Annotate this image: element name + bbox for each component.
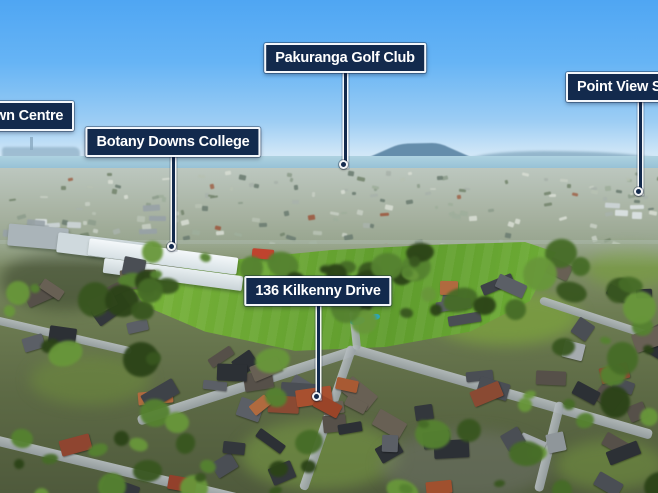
tree bbox=[173, 430, 198, 456]
leader-line bbox=[344, 71, 347, 167]
tree bbox=[300, 459, 316, 473]
tree bbox=[430, 304, 442, 316]
location-dot bbox=[634, 187, 643, 196]
tree bbox=[493, 479, 505, 488]
leader-line bbox=[317, 304, 320, 399]
label-botany-town-centre: wn Centre bbox=[0, 101, 74, 131]
leader-line bbox=[172, 155, 175, 249]
tree bbox=[33, 487, 51, 493]
label-botany-downs-college: Botany Downs College bbox=[85, 127, 260, 157]
tree bbox=[131, 301, 154, 321]
tree bbox=[599, 336, 611, 345]
tree bbox=[551, 479, 573, 493]
tree bbox=[127, 436, 149, 454]
label-136-kilkenny-drive: 136 Kilkenny Drive bbox=[244, 276, 391, 306]
tree bbox=[508, 441, 543, 467]
tree bbox=[268, 486, 282, 493]
location-dot bbox=[339, 160, 348, 169]
tree bbox=[41, 453, 58, 465]
house-roof bbox=[545, 432, 566, 454]
tree bbox=[164, 411, 189, 433]
tree bbox=[3, 304, 17, 318]
house-roof-red bbox=[425, 480, 452, 493]
tree bbox=[112, 429, 130, 448]
house-roof bbox=[217, 364, 247, 382]
location-dot bbox=[312, 392, 321, 401]
label-point-view: Point View S bbox=[566, 72, 658, 102]
aerial-photo: wn Centre Botany Downs College Pakuranga… bbox=[0, 0, 658, 493]
tree bbox=[13, 457, 26, 469]
location-dot bbox=[167, 242, 176, 251]
house-roof bbox=[536, 371, 567, 386]
label-pakuranga-golf-club: Pakuranga Golf Club bbox=[264, 43, 426, 73]
house-roof bbox=[381, 434, 398, 452]
tree bbox=[640, 468, 658, 493]
house-roof bbox=[414, 404, 434, 421]
house-roof bbox=[222, 441, 245, 455]
leader-line bbox=[639, 100, 642, 194]
